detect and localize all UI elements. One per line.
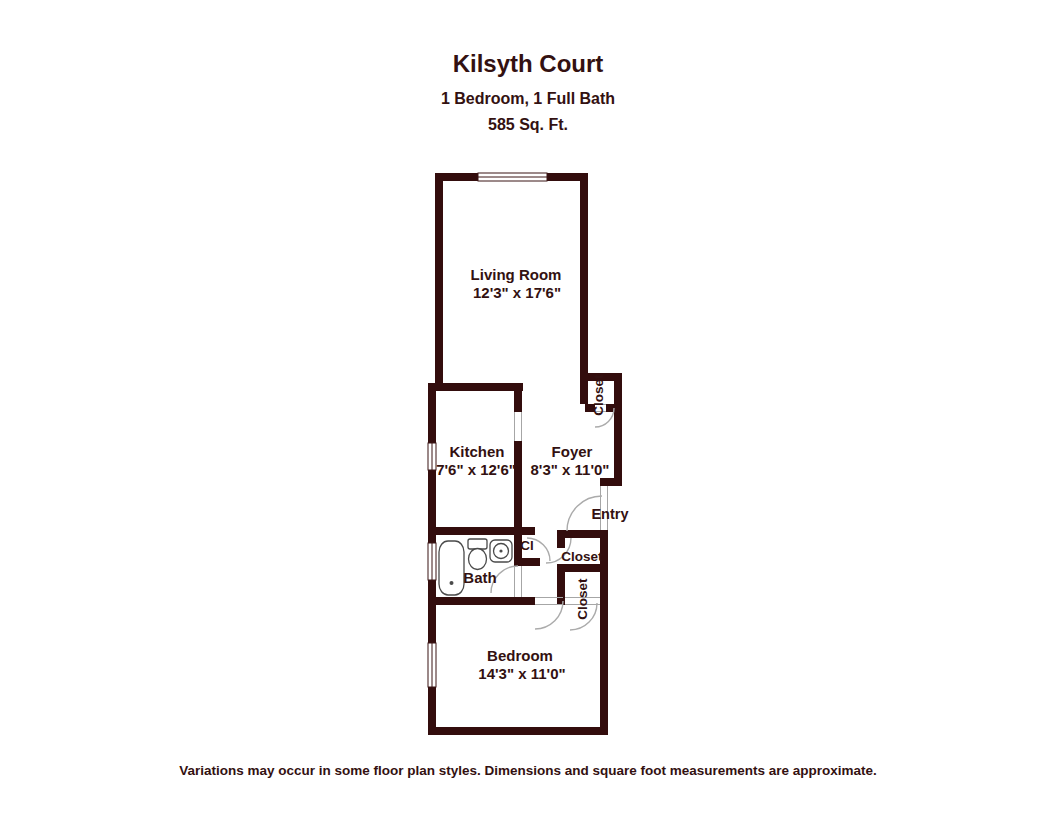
floor-plan-drawing: Living Room 12'3" x 17'6" Kitchen 7'6" x… [0, 0, 1056, 816]
room-labels: Living Room 12'3" x 17'6" Kitchen 7'6" x… [436, 266, 628, 682]
bath-label: Bath [463, 569, 496, 586]
small-closet-label: Cl [520, 538, 534, 553]
wall [428, 527, 535, 535]
living-room-label: Living Room [471, 266, 562, 283]
window [428, 643, 436, 687]
entry-label: Entry [591, 506, 628, 522]
living-room-dimensions: 12'3" x 17'6" [473, 284, 561, 301]
sink [490, 540, 512, 562]
windows [428, 173, 547, 687]
foyer-label: Foyer [552, 443, 593, 460]
wall [600, 478, 622, 486]
wall [428, 597, 535, 605]
door-arc [535, 601, 563, 629]
wall [514, 391, 522, 412]
floor-plan-page: Kilsyth Court 1 Bedroom, 1 Full Bath 585… [0, 0, 1056, 816]
kitchen-label: Kitchen [449, 443, 504, 460]
wall [557, 572, 565, 605]
wall [514, 441, 522, 535]
foyer-dimensions: 8'3" x 11'0" [531, 461, 610, 478]
wall [435, 181, 443, 383]
wall [514, 558, 540, 566]
wall [557, 538, 565, 548]
top-right-closet-label: Closet [591, 374, 606, 416]
wall [580, 173, 588, 404]
wall [428, 727, 608, 735]
bedroom-label: Bedroom [487, 647, 553, 664]
bedroom-dimensions: 14'3" x 11'0" [478, 665, 565, 682]
upper-closet-label: Closet [561, 549, 603, 564]
window [428, 543, 436, 580]
bath-fixtures [439, 539, 512, 595]
wall [606, 404, 614, 412]
window [478, 173, 547, 181]
disclaimer-text: Variations may occur in some floor plan … [0, 763, 1056, 778]
wall [428, 383, 523, 391]
bathtub [439, 541, 464, 595]
wall [614, 373, 622, 486]
window [428, 443, 436, 470]
lower-closet-label: Closet [575, 578, 590, 620]
toilet [468, 539, 487, 570]
wall [435, 173, 478, 181]
wall [428, 580, 436, 643]
wall [428, 391, 436, 443]
kitchen-dimensions: 7'6" x 12'6" [436, 461, 516, 478]
